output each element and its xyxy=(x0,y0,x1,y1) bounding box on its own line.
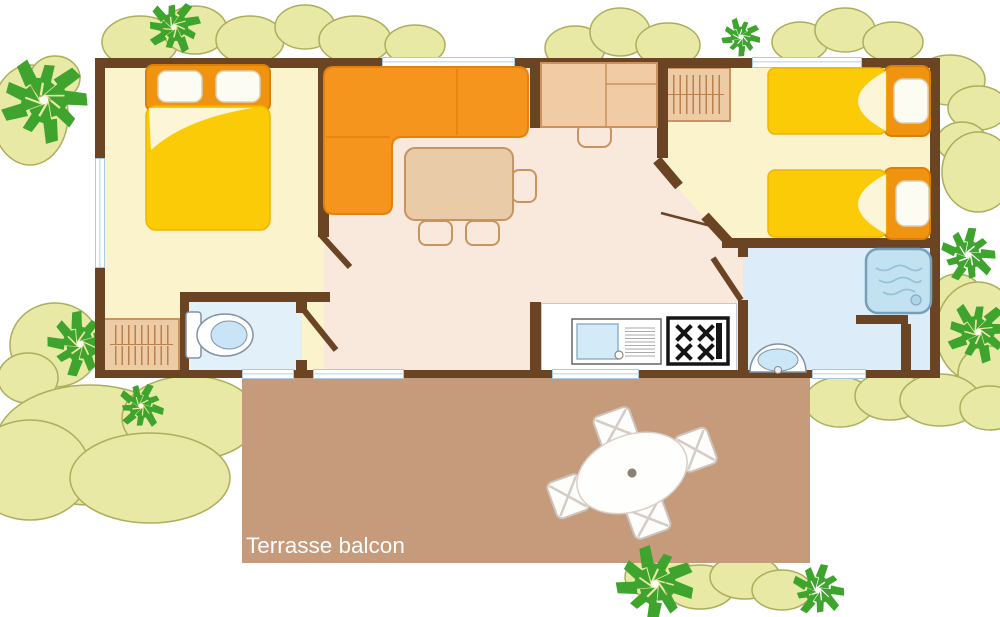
floor-plan: Terrasse balcon xyxy=(0,0,1000,617)
tree-icon xyxy=(603,533,853,617)
vegetation-front xyxy=(0,0,1000,617)
